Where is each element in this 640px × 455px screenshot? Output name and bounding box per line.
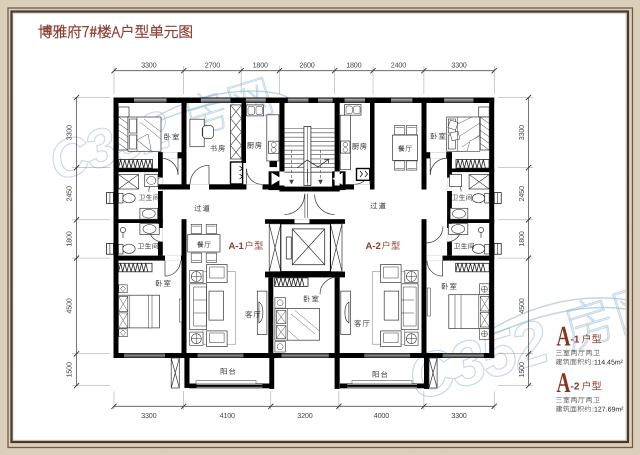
svg-text:2600: 2600 (299, 61, 314, 70)
svg-text:3300: 3300 (141, 411, 156, 420)
svg-text:4500: 4500 (517, 298, 526, 313)
svg-text:3300: 3300 (451, 61, 466, 70)
svg-text:1800: 1800 (65, 231, 74, 246)
svg-text:A-2: A-2 (366, 241, 381, 252)
svg-text:3300: 3300 (517, 125, 526, 140)
svg-text:3300: 3300 (451, 411, 466, 420)
svg-text:2450: 2450 (517, 186, 526, 201)
svg-text:4000: 4000 (374, 411, 389, 420)
svg-text:1800: 1800 (253, 61, 268, 70)
svg-text:A: A (557, 368, 571, 399)
svg-text:1500: 1500 (65, 362, 74, 377)
svg-text:1800: 1800 (517, 231, 526, 246)
svg-text:3200: 3200 (297, 411, 312, 420)
svg-text:1800: 1800 (346, 61, 361, 70)
svg-text:4100: 4100 (220, 411, 235, 420)
svg-text:3300: 3300 (141, 61, 156, 70)
svg-text:A-1: A-1 (229, 241, 245, 252)
svg-text::127.69m²: :127.69m² (592, 407, 624, 414)
svg-text:2400: 2400 (391, 61, 406, 70)
svg-text:2450: 2450 (65, 186, 74, 201)
svg-text:4500: 4500 (65, 298, 74, 313)
svg-text:3300: 3300 (65, 125, 74, 140)
svg-text:-2: -2 (571, 382, 580, 393)
svg-text:1500: 1500 (517, 362, 526, 377)
svg-text:A: A (557, 321, 571, 352)
svg-text:2700: 2700 (205, 61, 220, 70)
svg-text::114.45m²: :114.45m² (592, 359, 624, 366)
svg-text:-1: -1 (571, 335, 580, 346)
